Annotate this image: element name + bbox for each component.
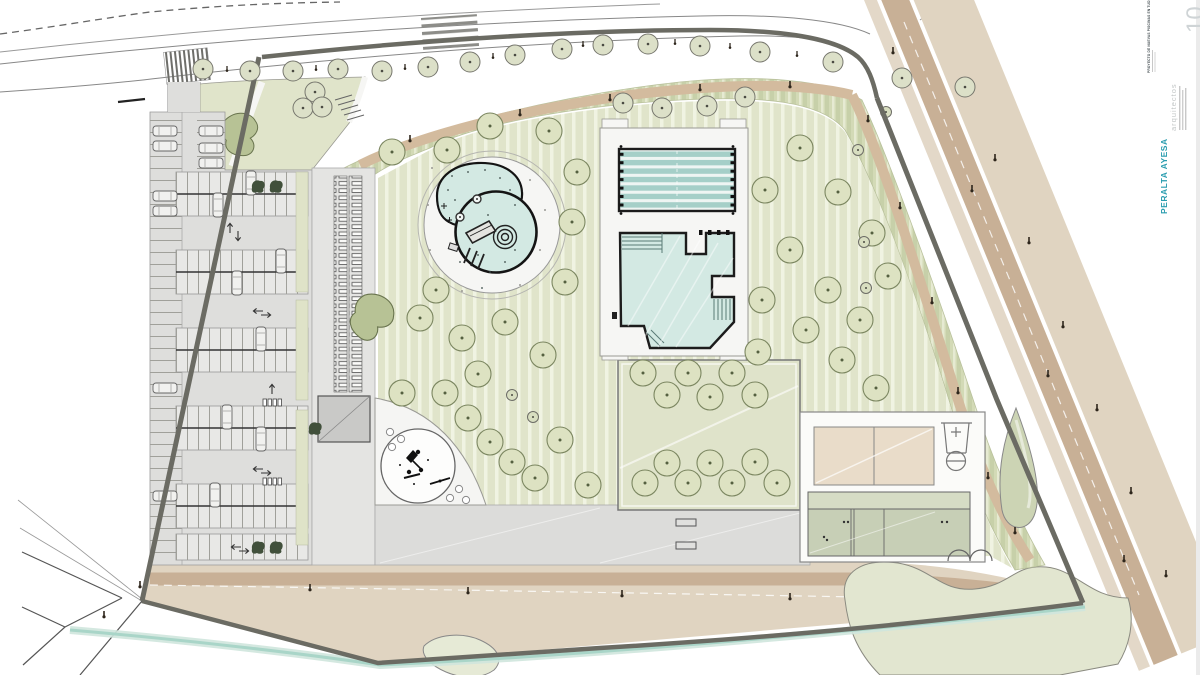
lap-pool <box>619 145 735 215</box>
site-plan-drawing: PROYECTO DE NUEVAS PISCINAS EN TUDELA, N… <box>0 0 1200 675</box>
firm-name: PERALTA AYESA <box>1159 138 1169 214</box>
fine-print-illegible <box>1152 50 1153 72</box>
firm-subtitle: arquitectos <box>1169 83 1178 131</box>
planting-strip <box>296 300 308 400</box>
project-title: PROYECTO DE NUEVAS PISCINAS EN TUDELA, N… <box>1147 0 1151 73</box>
fine-print-illegible <box>1185 88 1186 130</box>
pergola-slats <box>349 176 362 392</box>
plaza <box>375 505 820 565</box>
sheet-number: 10 <box>1182 6 1200 33</box>
promenade <box>309 168 375 565</box>
fine-print-illegible <box>1155 52 1156 72</box>
fine-print-illegible <box>1182 90 1183 130</box>
bench <box>676 542 696 549</box>
planting-strip <box>296 410 308 545</box>
zebra-crossing <box>421 14 479 50</box>
sports-area <box>800 412 992 562</box>
bench <box>676 519 696 526</box>
fine-print-illegible <box>1179 86 1180 130</box>
parking-entry-road <box>168 82 200 112</box>
planting-strip <box>296 172 308 292</box>
sheet-edge <box>1196 0 1200 675</box>
pergola-slats <box>334 176 347 392</box>
service-building <box>808 492 970 556</box>
site-plan-sheet: PROYECTO DE NUEVAS PISCINAS EN TUDELA, N… <box>0 0 1200 675</box>
pools-deck <box>600 119 748 360</box>
